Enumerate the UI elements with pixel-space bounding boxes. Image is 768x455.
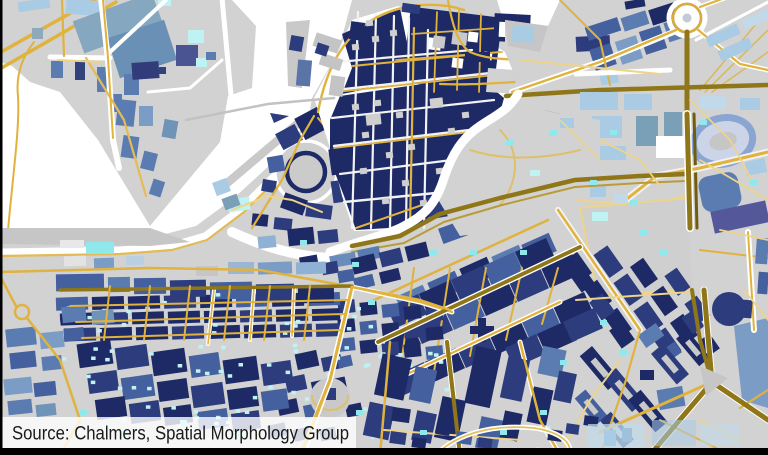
svg-text:Source: Chalmers, Spatial Morp: Source: Chalmers, Spatial Morphology Gro… bbox=[12, 424, 349, 445]
